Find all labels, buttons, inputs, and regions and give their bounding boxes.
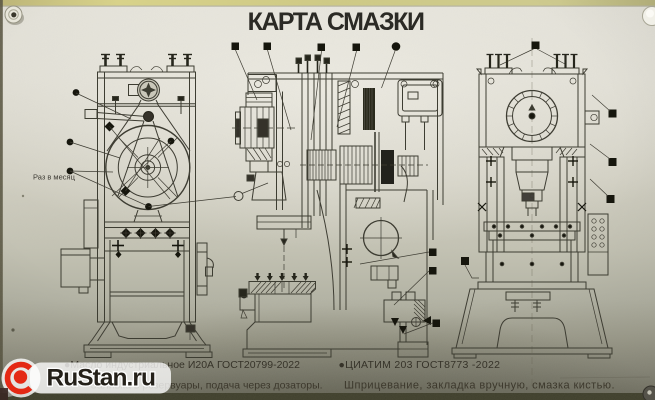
svg-text:RuStan.ru: RuStan.ru [47,365,156,392]
svg-text:Раз в месяц: Раз в месяц [33,173,76,182]
svg-text:●ЦИАТИМ 203 ГОСТ8773 -2022: ●ЦИАТИМ 203 ГОСТ8773 -2022 [339,359,501,371]
svg-text:Шприцевание, закладка вручную,: Шприцевание, закладка вручную, смазка ки… [344,380,615,392]
svg-text:КАРТА СМАЗКИ: КАРТА СМАЗКИ [248,8,424,36]
